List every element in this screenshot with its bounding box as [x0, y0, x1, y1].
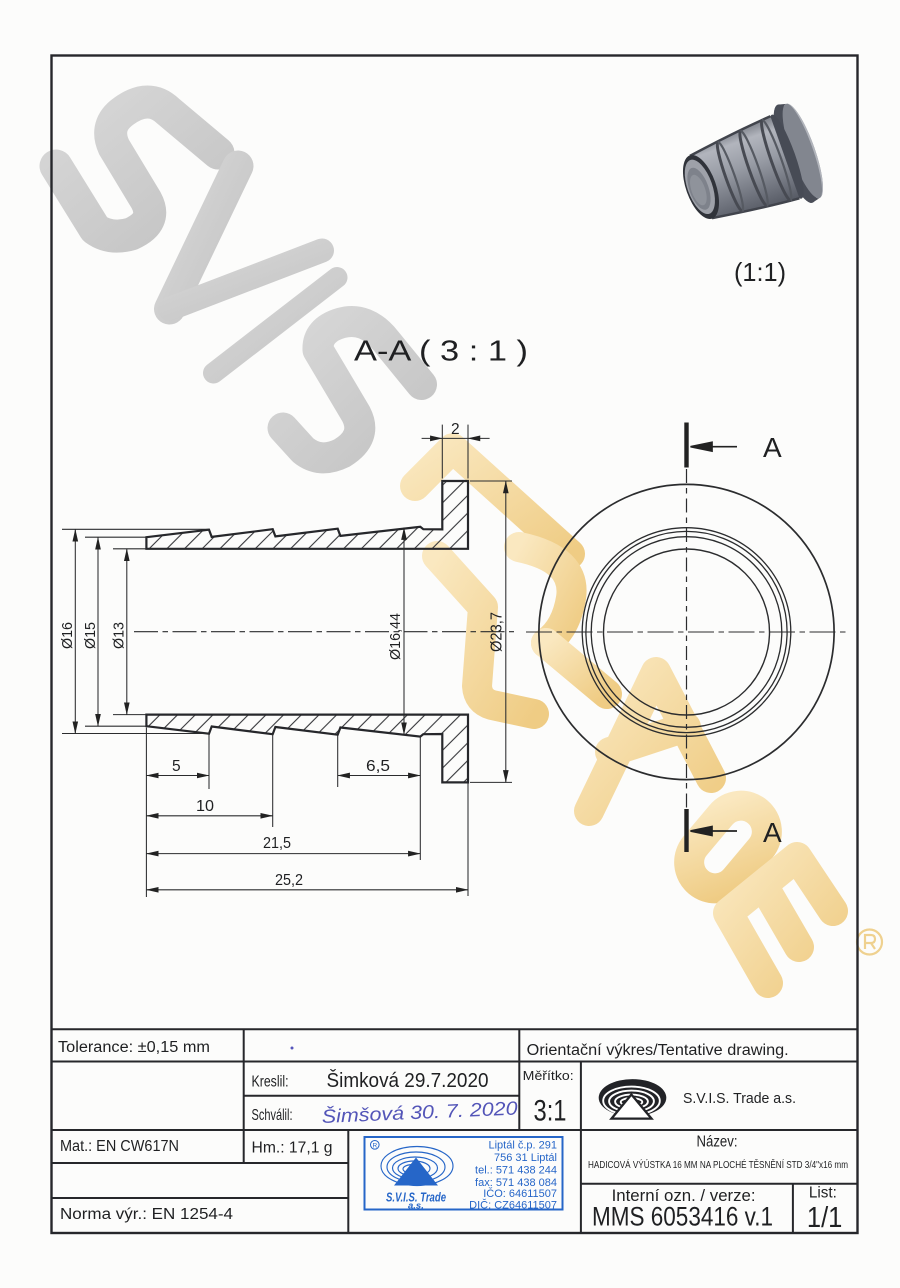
svg-text:A: A	[763, 817, 782, 848]
svg-text:Název:: Název:	[697, 1134, 738, 1151]
svg-text:Kreslil:: Kreslil:	[252, 1074, 289, 1091]
svg-text:Schválil:: Schválil:	[252, 1107, 293, 1124]
svg-text:IČO: 64611507: IČO: 64611507	[483, 1187, 557, 1200]
svg-text:Ø15: Ø15	[83, 622, 99, 649]
svg-text:(1:1): (1:1)	[734, 257, 786, 287]
svg-text:756 31 Liptál: 756 31 Liptál	[494, 1152, 557, 1164]
svg-text:A-A ( 3 : 1 ): A-A ( 3 : 1 )	[354, 336, 528, 368]
svg-text:A: A	[763, 432, 782, 463]
svg-text:Ø16,44: Ø16,44	[388, 613, 404, 660]
svg-text:MMS 6053416 v.1: MMS 6053416 v.1	[592, 1202, 773, 1232]
svg-text:3:1: 3:1	[534, 1095, 567, 1128]
svg-text:R: R	[373, 1143, 378, 1150]
svg-text:Liptál č.p. 291: Liptál č.p. 291	[489, 1140, 558, 1152]
svg-text:Šimková 29.7.2020: Šimková 29.7.2020	[327, 1069, 489, 1092]
svg-text:Tolerance: ±0,15 mm: Tolerance: ±0,15 mm	[58, 1039, 210, 1056]
svg-text:S.V.I.S. Trade a.s.: S.V.I.S. Trade a.s.	[683, 1090, 796, 1107]
svg-text:a.s.: a.s.	[408, 1201, 424, 1212]
svg-text:5: 5	[172, 758, 181, 775]
svg-text:HADICOVÁ VÝÚSTKA 16 MM NA PLOC: HADICOVÁ VÝÚSTKA 16 MM NA PLOCHÉ TĚSNĚNÍ…	[588, 1158, 848, 1171]
svg-text:Mat.: EN CW617N: Mat.: EN CW617N	[60, 1138, 179, 1155]
svg-text:1/1: 1/1	[807, 1202, 843, 1234]
svg-text:Norma výr.: EN 1254-4: Norma výr.: EN 1254-4	[60, 1206, 233, 1223]
svg-text:25,2: 25,2	[275, 872, 303, 889]
svg-text:21,5: 21,5	[263, 835, 291, 852]
svg-text:Orientační výkres/Tentative dr: Orientační výkres/Tentative drawing.	[527, 1042, 789, 1059]
svg-text:Hm.: 17,1 g: Hm.: 17,1 g	[252, 1140, 333, 1157]
svg-text:Měřítko:: Měřítko:	[523, 1068, 574, 1083]
svg-text:Ø13: Ø13	[111, 622, 127, 649]
svg-text:Ø16: Ø16	[60, 622, 76, 649]
svg-text:6,5: 6,5	[366, 758, 390, 775]
svg-text:List:: List:	[809, 1185, 837, 1202]
svg-text:tel.: 571 438 244: tel.: 571 438 244	[475, 1165, 557, 1177]
svg-text:Šimšová 30. 7. 2020: Šimšová 30. 7. 2020	[321, 1097, 518, 1128]
svg-text:10: 10	[196, 798, 214, 815]
svg-text:DIČ: CZ64611507: DIČ: CZ64611507	[469, 1199, 557, 1212]
svg-text:Ø23,7: Ø23,7	[489, 612, 506, 652]
svg-text:2: 2	[451, 421, 460, 438]
